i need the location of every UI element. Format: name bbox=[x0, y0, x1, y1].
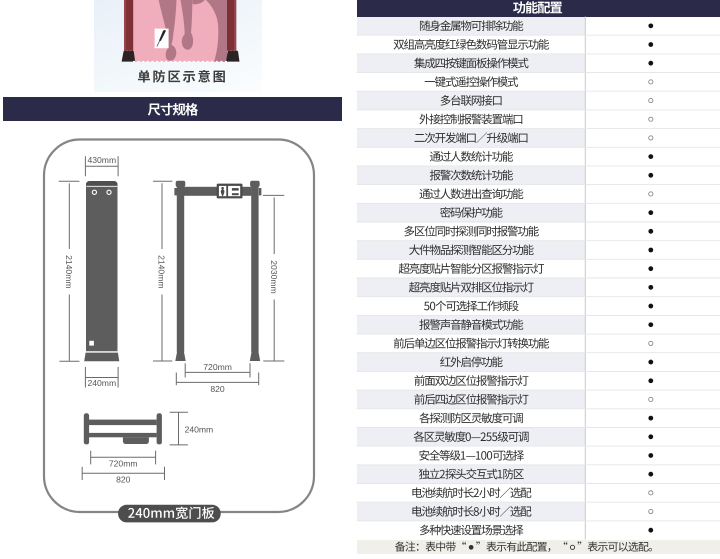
svg-text:720mm: 720mm bbox=[203, 362, 232, 372]
svg-text:2030mm: 2030mm bbox=[269, 260, 279, 293]
svg-text:820: 820 bbox=[210, 384, 225, 394]
svg-text:240mm: 240mm bbox=[87, 378, 116, 388]
svg-text:720mm: 720mm bbox=[109, 458, 138, 468]
svg-text:820: 820 bbox=[116, 475, 131, 485]
svg-text:240mm: 240mm bbox=[185, 425, 214, 435]
svg-text:2140mm: 2140mm bbox=[157, 255, 167, 288]
svg-text:2140mm: 2140mm bbox=[64, 255, 74, 288]
svg-text:430mm: 430mm bbox=[87, 155, 116, 165]
